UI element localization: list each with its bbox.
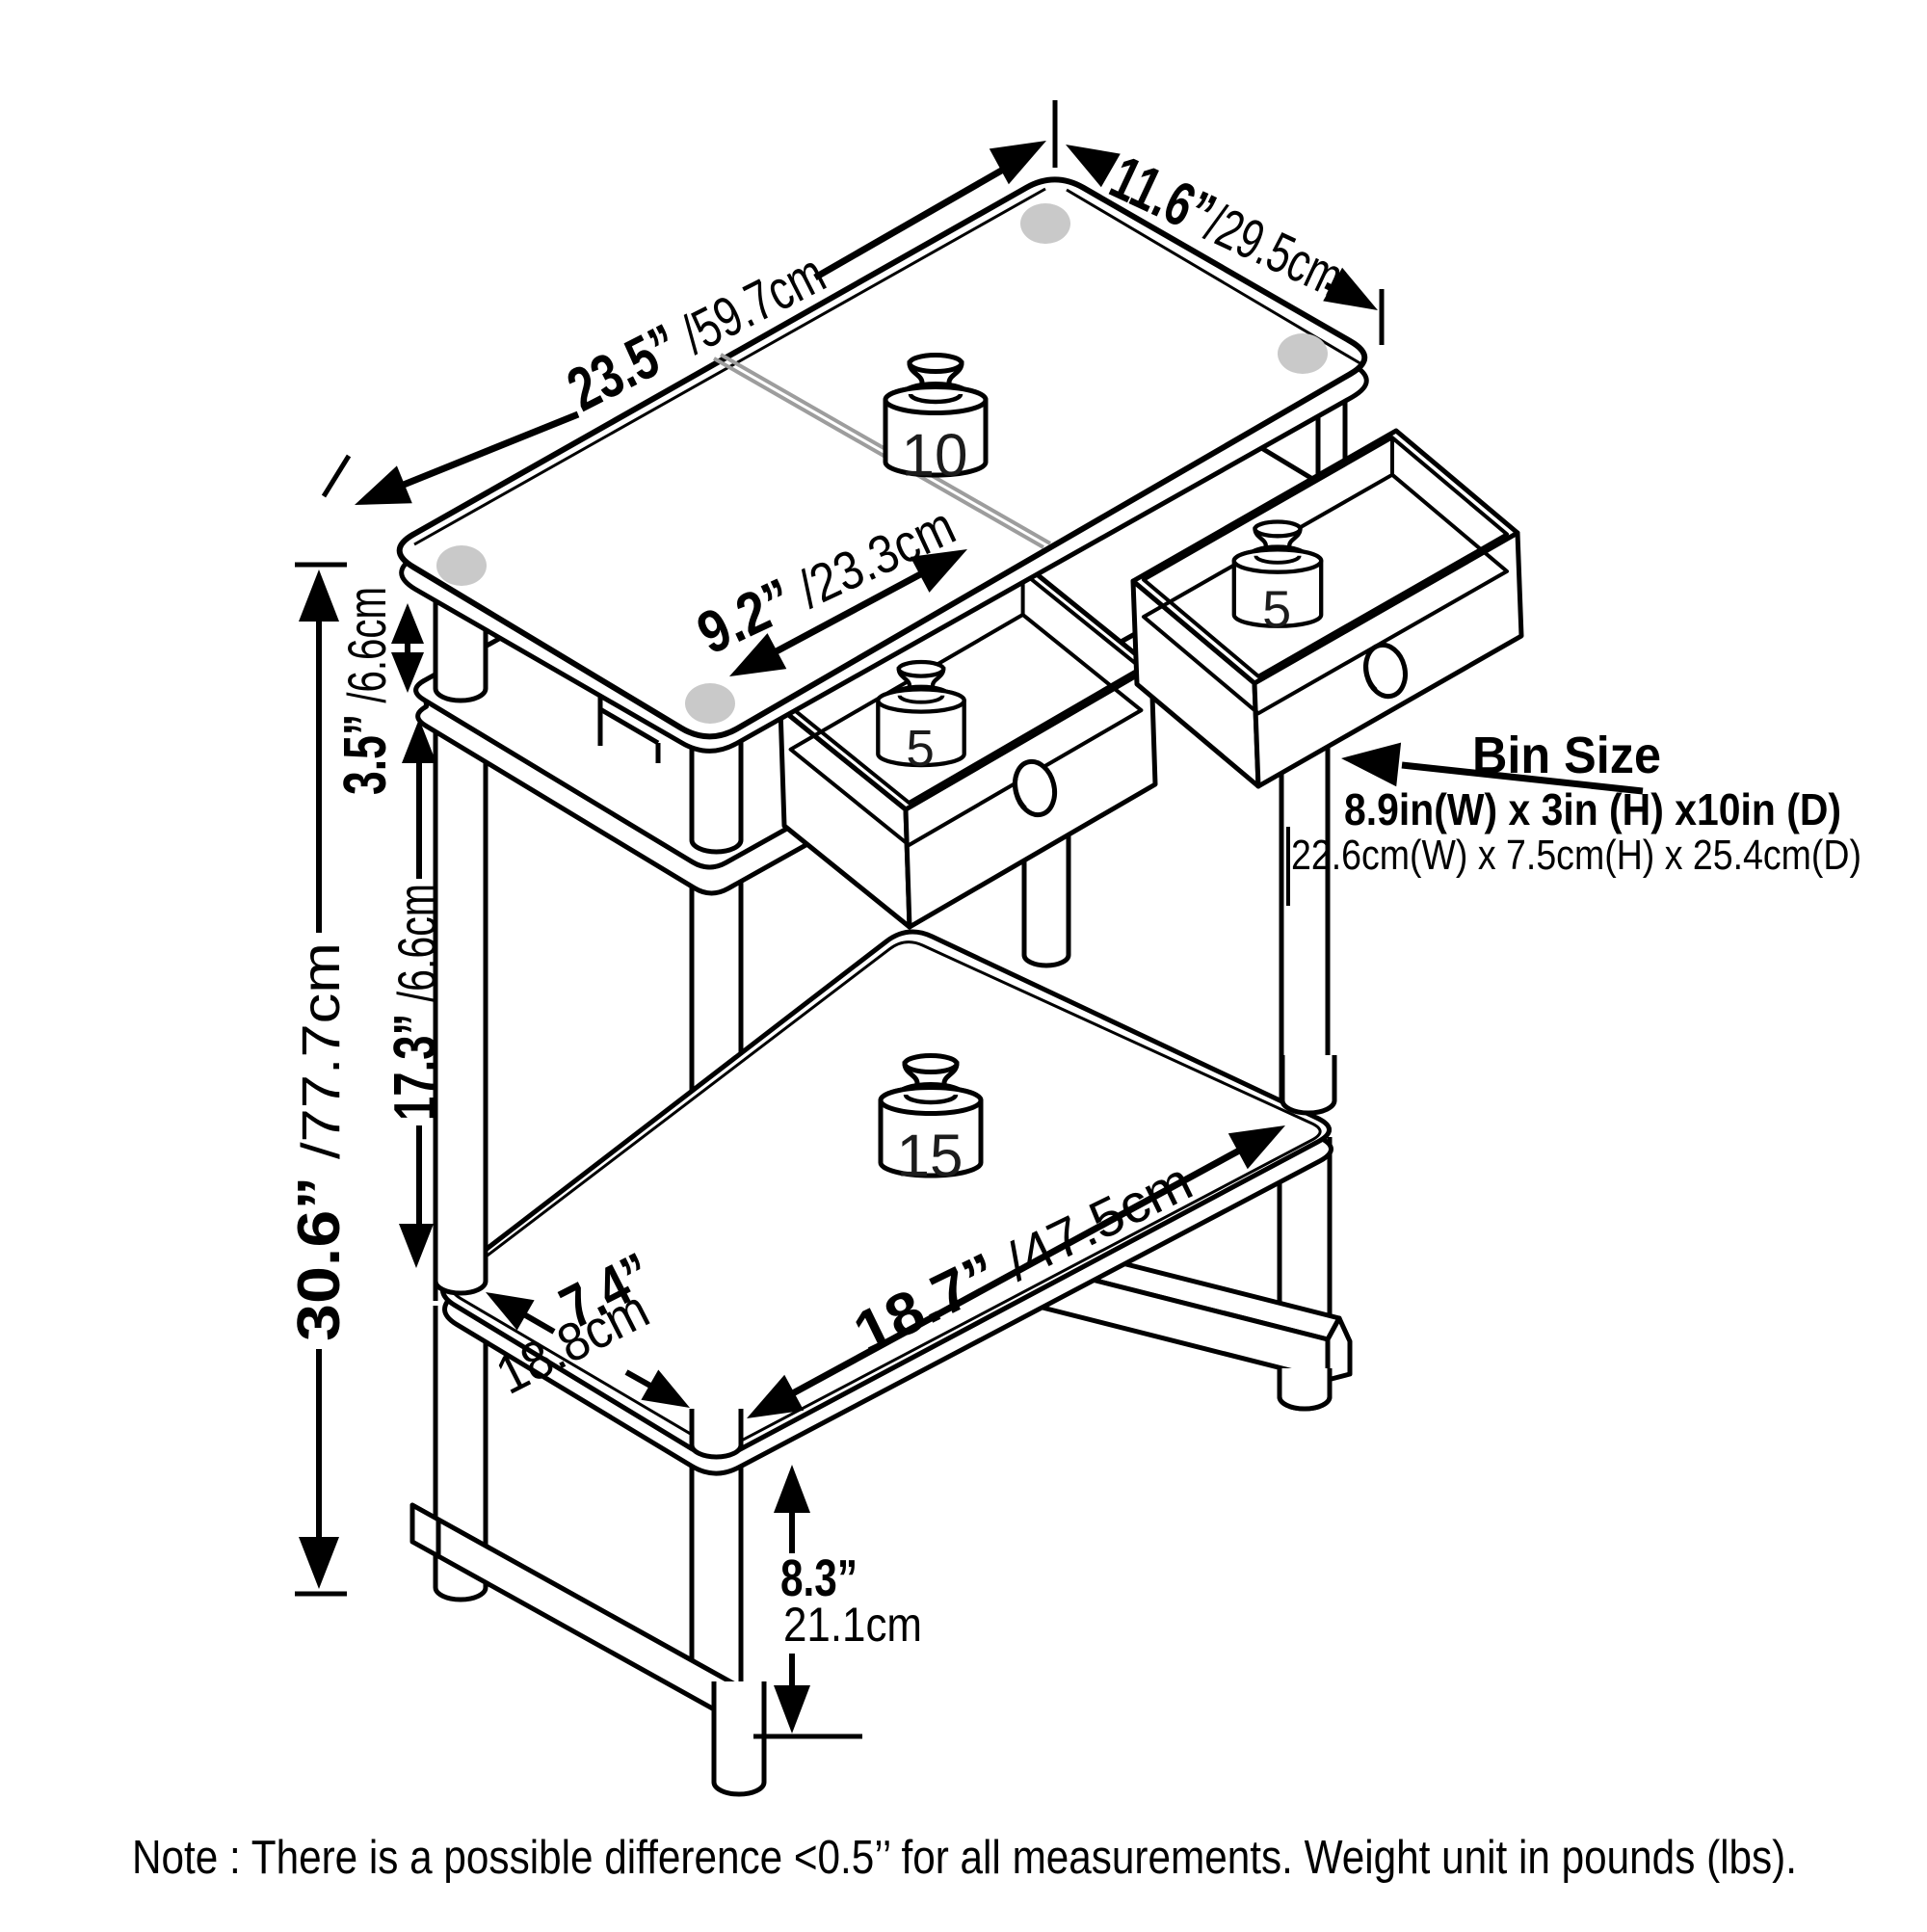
svg-text:Note : There is a possible dif: Note : There is a possible difference <0… xyxy=(132,1832,1797,1884)
svg-text:Bin Size: Bin Size xyxy=(1472,727,1661,784)
svg-text:17.3” /6.6cm: 17.3” /6.6cm xyxy=(383,884,449,1121)
svg-text:22.6cm(W) x 7.5cm(H) x 25.4cm(: 22.6cm(W) x 7.5cm(H) x 25.4cm(D) xyxy=(1291,832,1861,879)
svg-text:21.1cm: 21.1cm xyxy=(783,1598,922,1652)
svg-text:3.5” /6.6cm: 3.5” /6.6cm xyxy=(332,587,399,795)
svg-text:5: 5 xyxy=(1262,580,1291,638)
svg-text:5: 5 xyxy=(906,721,934,778)
svg-text:30.6” /77.7cm: 30.6” /77.7cm xyxy=(286,942,353,1341)
svg-text:15: 15 xyxy=(897,1124,963,1190)
svg-text:8.9in(W) x 3in (H) x10in (D): 8.9in(W) x 3in (H) x10in (D) xyxy=(1344,784,1841,834)
svg-text:10: 10 xyxy=(902,423,968,490)
